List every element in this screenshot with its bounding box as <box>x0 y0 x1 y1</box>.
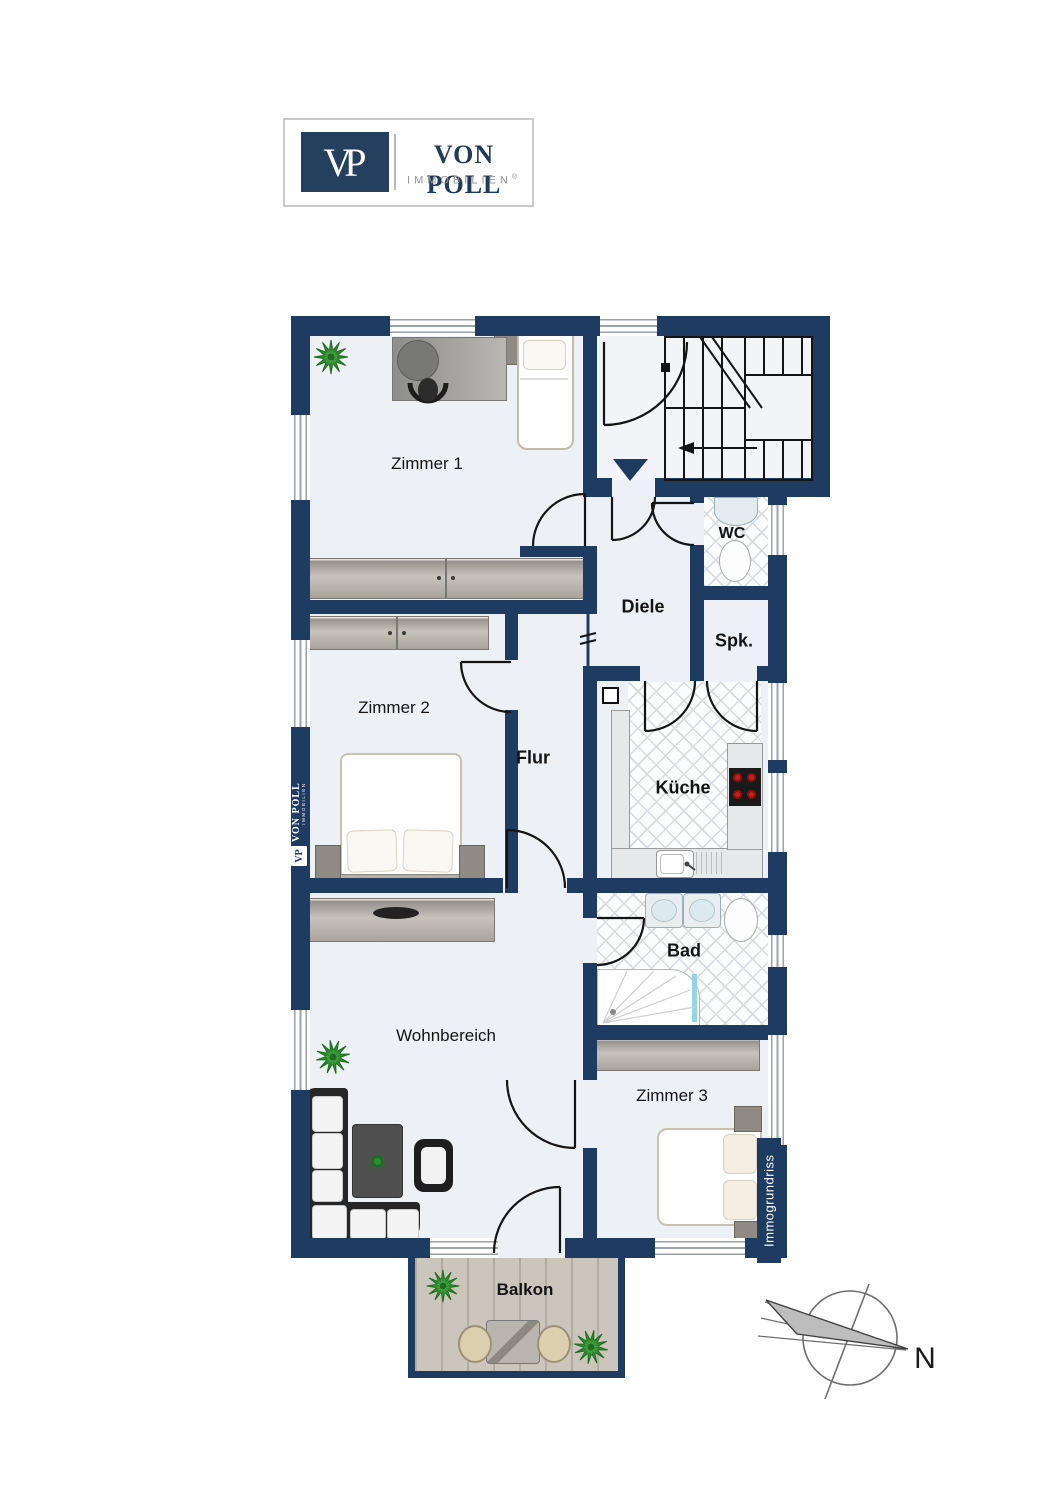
zimmer3-pillow-bottom <box>723 1180 757 1220</box>
wardrobe-divider <box>396 617 398 649</box>
kitchen-stove <box>729 768 761 806</box>
zimmer3-pillow-top <box>723 1134 757 1174</box>
wall-zimmer1-right-upper <box>583 336 597 497</box>
sofa-cushion <box>312 1170 343 1202</box>
zimmer2-nightstand-left <box>315 845 341 881</box>
wall-zimmer1-zimmer2 <box>291 600 597 614</box>
compass-rose <box>758 1284 906 1399</box>
zimmer2-pillow-left <box>346 829 397 873</box>
window-right-kitchen-lower <box>768 773 787 852</box>
room-label-balkon: Balkon <box>497 1280 554 1300</box>
bath-sink-left <box>645 893 683 928</box>
window-bottom-zimmer3 <box>655 1238 745 1258</box>
zimmer3-nightstand-top <box>734 1106 762 1132</box>
subbrand-text: IMMOBILIEN <box>407 175 512 187</box>
table-plant <box>371 1155 384 1168</box>
bath-shower <box>597 969 700 1027</box>
window-top-zimmer1 <box>390 316 475 336</box>
balcony-door-threshold <box>498 1238 565 1258</box>
wall-mid-horizontal-a <box>291 878 503 893</box>
wall-exterior-bottom-a <box>291 1238 430 1258</box>
immogrundriss-watermark: Immogrundriss <box>757 1138 781 1263</box>
stove-burner <box>747 773 756 782</box>
kitchen-counter-left <box>611 710 630 850</box>
kitchen-sink <box>656 850 694 878</box>
wall-stairwell-right <box>812 316 830 497</box>
wardrobe-handle <box>451 576 455 580</box>
watermark-sub: IMMOBILIEN <box>302 782 307 825</box>
zimmer2-pillow-right <box>402 829 453 873</box>
wall-exterior-top <box>291 316 830 336</box>
logo-divider <box>394 134 396 190</box>
zimmer2-nightstand-right <box>459 845 485 881</box>
room-label-spk: Spk. <box>715 631 753 652</box>
room-label-diele: Diele <box>621 597 664 618</box>
wall-stairwell-bottom <box>655 478 830 497</box>
window-left-zimmer1 <box>291 415 310 500</box>
wardrobe-handle <box>402 631 406 635</box>
balcony-chair-right <box>537 1325 571 1363</box>
sink-basin <box>660 854 684 874</box>
wall-living-right-a <box>583 893 597 918</box>
bath-toilet <box>724 898 758 942</box>
stove-burner <box>747 790 756 799</box>
window-right-wc <box>768 505 787 555</box>
bath-sink-right <box>683 893 721 928</box>
brand-name: VON POLL <box>403 140 525 200</box>
sideboard-handle <box>373 907 419 919</box>
basin <box>689 899 715 922</box>
basin <box>651 899 677 922</box>
registered-mark: ® <box>512 174 521 181</box>
room-label-zimmer2: Zimmer 2 <box>358 698 430 718</box>
stairwell-floor <box>597 336 812 480</box>
desk-chair-mat <box>397 340 439 381</box>
north-label: N <box>914 1342 936 1376</box>
room-label-zimmer1: Zimmer 1 <box>391 454 463 474</box>
wall-zimmer2-flur-upper <box>505 614 518 660</box>
zimmer3-wardrobe <box>594 1038 760 1071</box>
sofa-cushion <box>312 1096 343 1132</box>
room-label-kueche: Küche <box>655 778 710 799</box>
watermark-text: VON POLL IMMOBILIEN <box>291 782 307 842</box>
zimmer1-blanket-line <box>520 378 568 380</box>
sofa-corner-cushion <box>312 1205 347 1240</box>
kitchen-switch-symbol <box>602 687 619 704</box>
window-left-zimmer2 <box>291 640 310 727</box>
window-right-zimmer3 <box>768 1035 787 1145</box>
zimmer1-pillow <box>523 340 566 370</box>
stove-burner <box>733 773 742 782</box>
wall-living-right-c <box>583 1148 597 1238</box>
vp-monogram-icon: VP <box>301 132 389 192</box>
wall-flur-kueche <box>583 666 597 893</box>
sofa-cushion <box>387 1209 419 1240</box>
wall-zimmer2-flur-lower <box>505 710 518 893</box>
wardrobe-divider <box>445 559 447 598</box>
wall-entry-stub <box>597 478 612 497</box>
wardrobe-handle <box>437 576 441 580</box>
kitchen-drainer <box>696 852 722 874</box>
window-top-stairhall <box>600 316 657 336</box>
window-bottom-living <box>430 1238 498 1258</box>
wall-exterior-bottom-b <box>565 1238 655 1258</box>
wc-sink <box>714 497 758 526</box>
zimmer1-wardrobe <box>305 558 585 599</box>
armchair-seat <box>421 1147 446 1184</box>
sofa-cushion <box>350 1209 386 1240</box>
coffee-table <box>352 1124 403 1198</box>
balcony-chair-left <box>458 1325 492 1363</box>
room-label-flur: Flur <box>516 748 550 769</box>
vonpoll-logo: VP VON POLL IMMOBILIEN® <box>283 118 534 207</box>
wc-toilet <box>719 540 751 582</box>
vp-monogram-icon: VP <box>291 846 307 866</box>
wall-wc-diele-stub <box>690 497 704 503</box>
wall-living-right-b <box>583 963 597 1080</box>
room-label-bad: Bad <box>667 941 701 962</box>
wall-spk-left <box>690 600 704 681</box>
wall-wc-spk <box>690 586 768 600</box>
brand-subtitle: IMMOBILIEN® <box>403 174 525 187</box>
balcony-table <box>486 1320 540 1364</box>
wall-mid-horizontal-b <box>567 878 768 893</box>
sofa-cushion <box>312 1133 343 1169</box>
floorplan-page: VP VON POLL IMMOBILIEN® <box>0 0 1060 1500</box>
window-left-living <box>291 1010 310 1090</box>
wall-bad-zimmer3 <box>597 1025 768 1040</box>
living-sideboard <box>302 898 495 942</box>
window-right-bad <box>768 935 787 967</box>
wardrobe-handle <box>388 631 392 635</box>
wall-zimmer1-nook <box>520 546 585 557</box>
armchair <box>414 1139 453 1192</box>
room-label-zimmer3: Zimmer 3 <box>636 1086 708 1106</box>
window-right-kitchen-upper <box>768 683 787 760</box>
compass-needle <box>766 1300 908 1349</box>
wall-diele-kueche-a <box>597 666 640 681</box>
room-label-wohnbereich: Wohnbereich <box>396 1026 496 1046</box>
shower-glass <box>692 974 697 1022</box>
stove-burner <box>733 790 742 799</box>
zimmer2-wardrobe <box>305 616 489 650</box>
left-wall-watermark: VP VON POLL IMMOBILIEN <box>288 756 310 866</box>
wall-diele-kueche-c <box>757 666 768 681</box>
room-label-wc: WC <box>719 525 746 543</box>
